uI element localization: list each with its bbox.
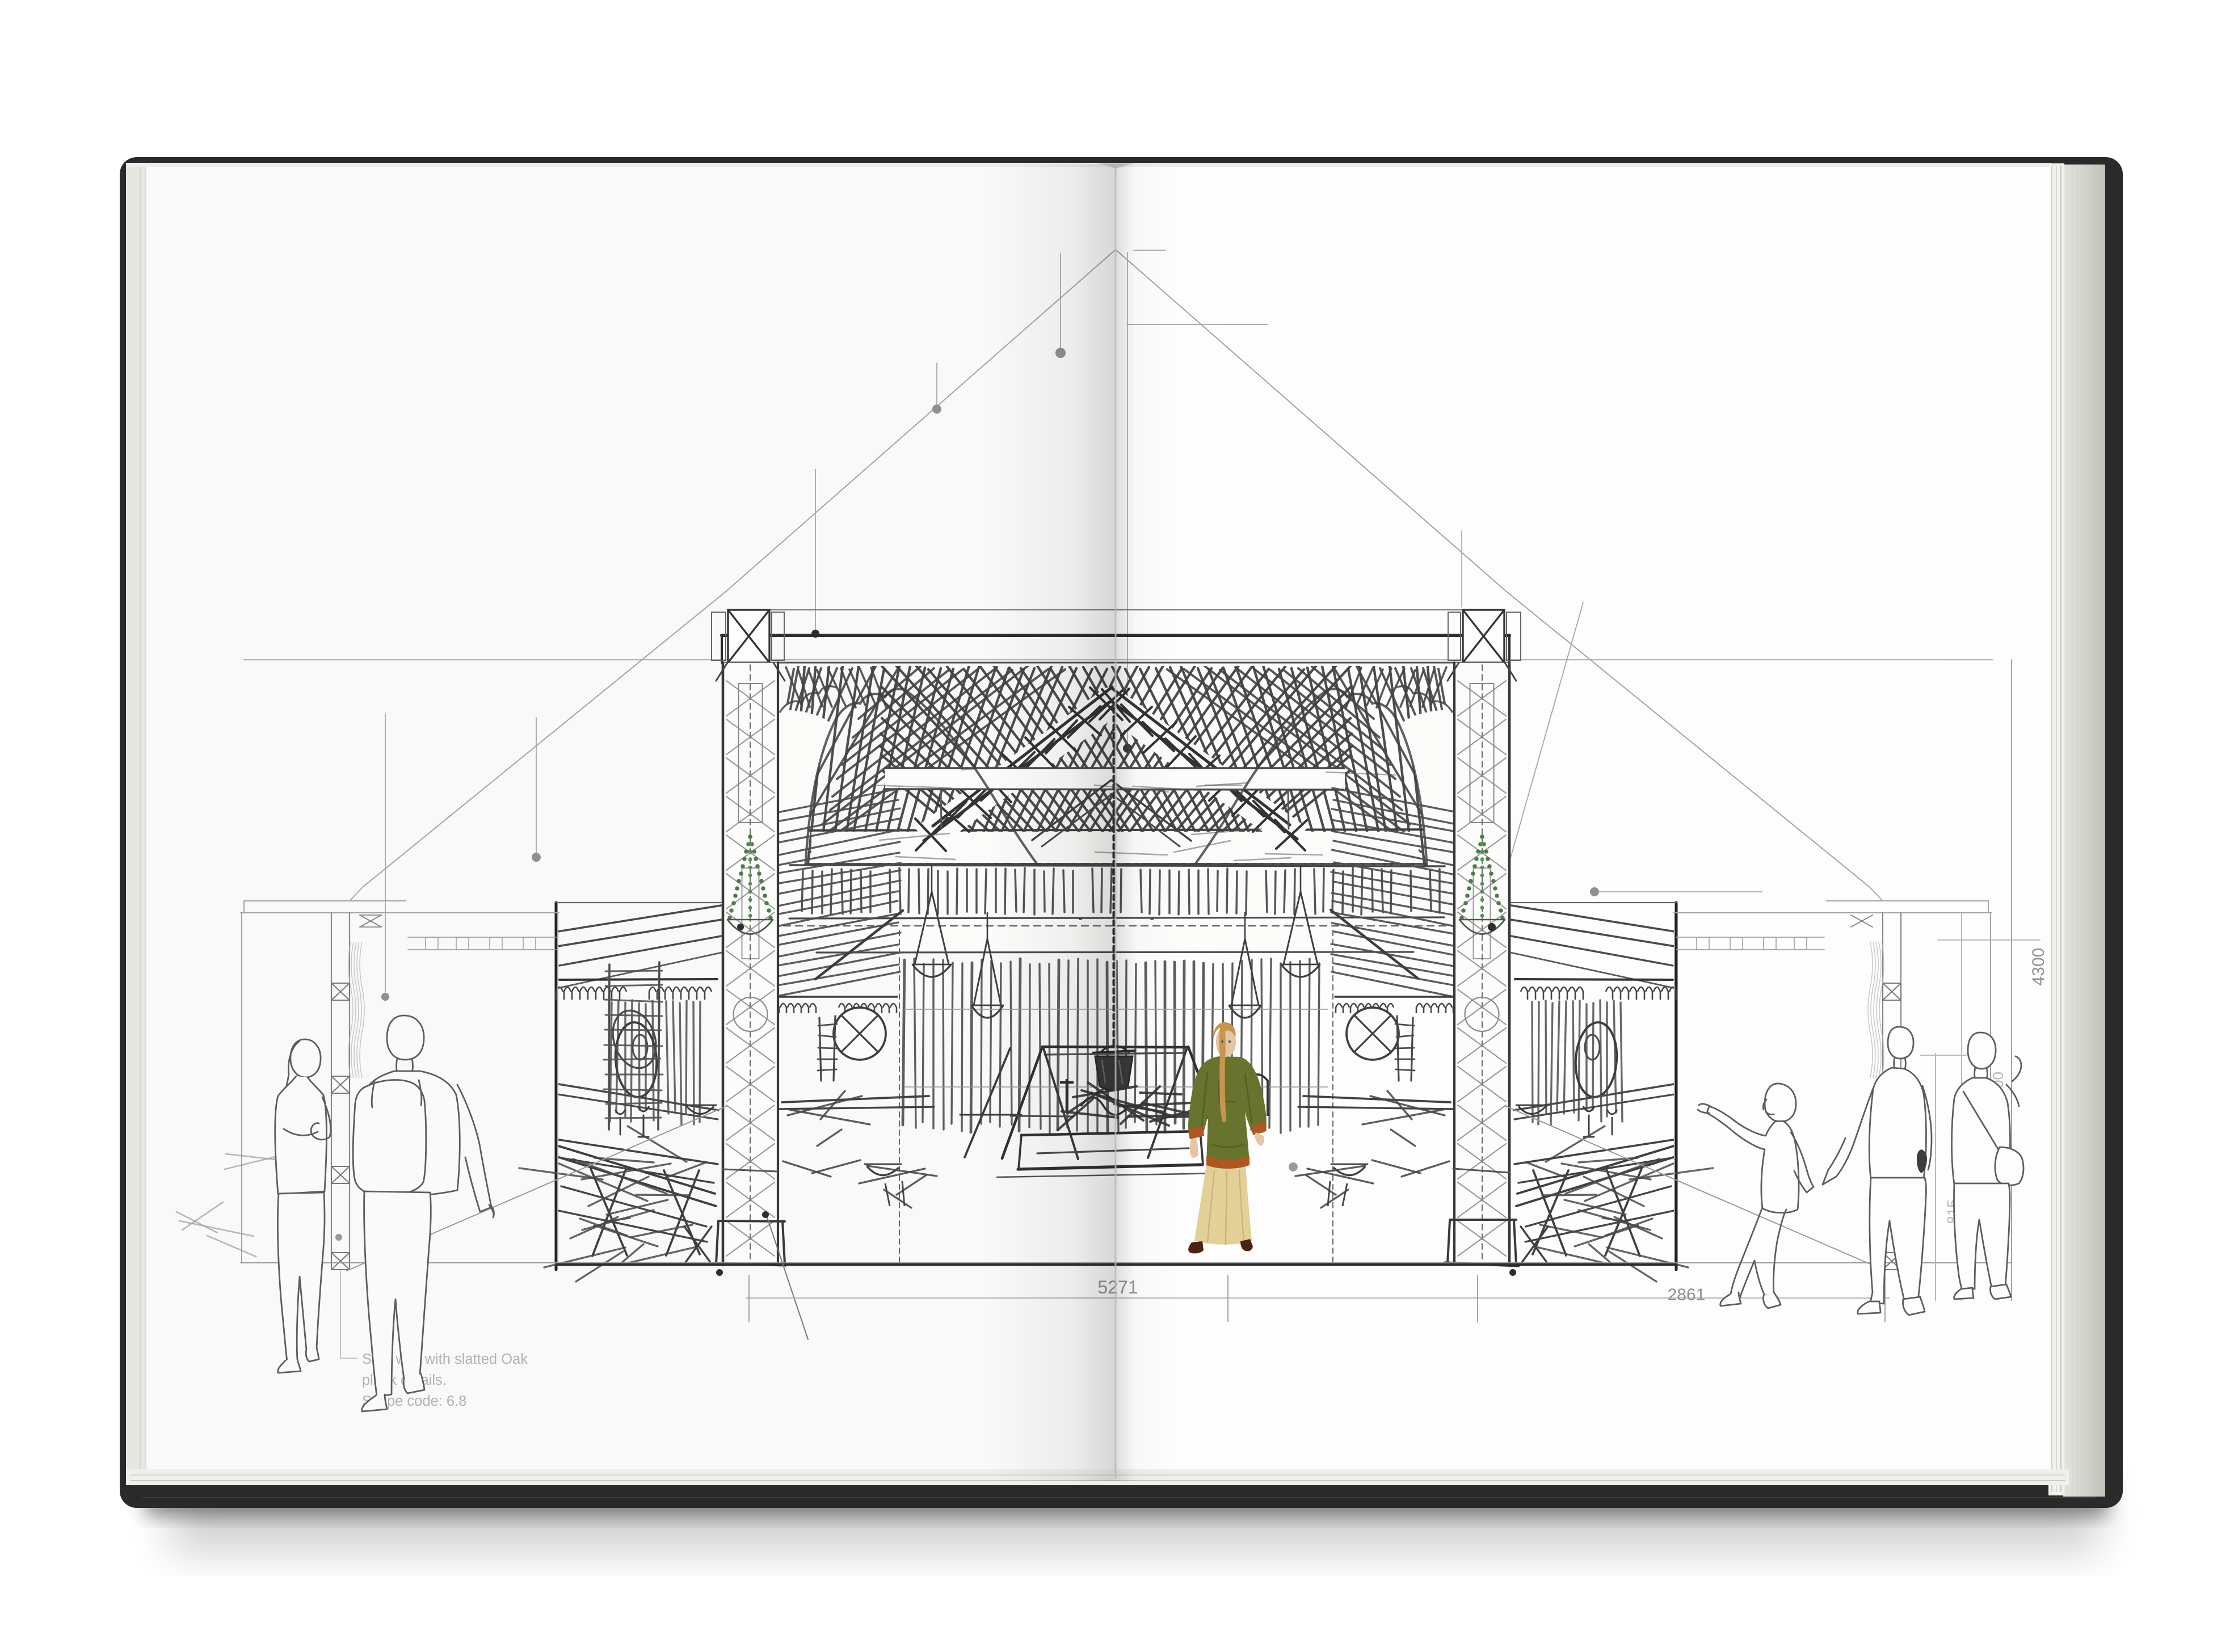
svg-text:2861: 2861 xyxy=(1668,1286,1706,1304)
svg-text:4300: 4300 xyxy=(2029,948,2048,986)
